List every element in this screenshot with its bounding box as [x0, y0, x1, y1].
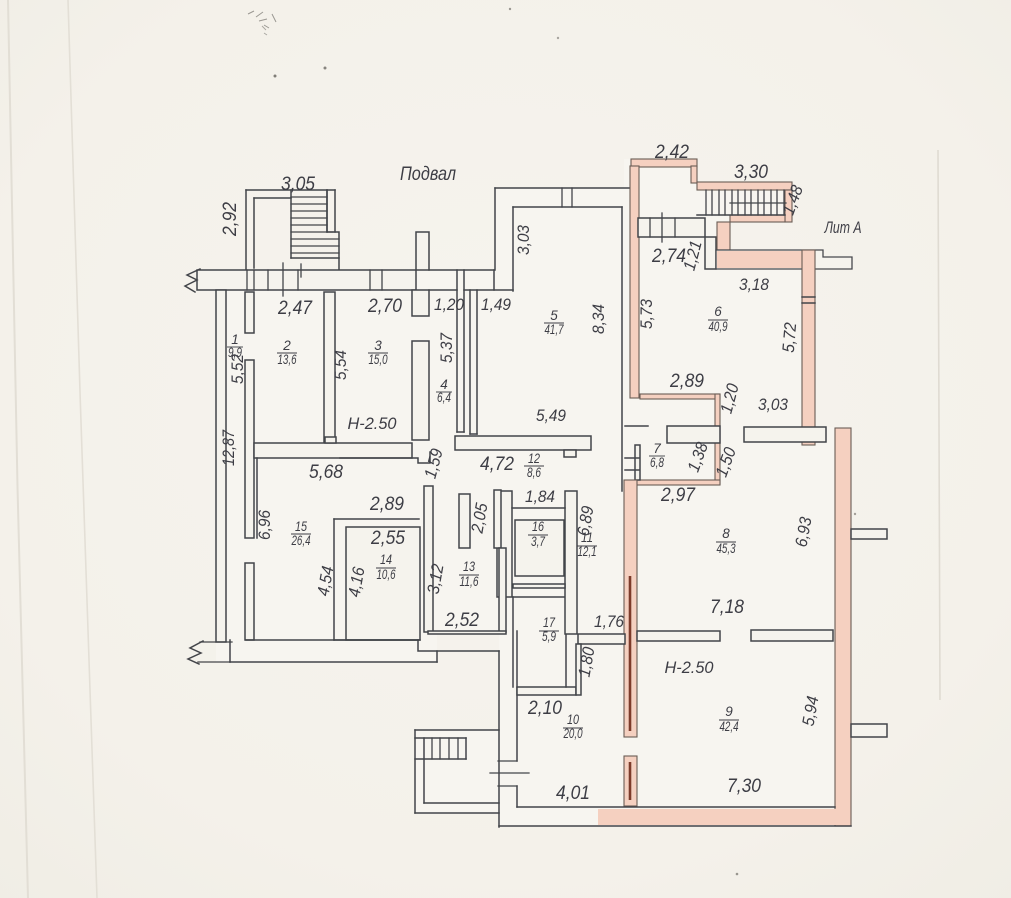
svg-text:13,6: 13,6 [278, 352, 297, 367]
svg-text:5,52: 5,52 [228, 354, 247, 384]
svg-text:5,68: 5,68 [309, 462, 343, 483]
svg-text:2,10: 2,10 [527, 698, 562, 719]
svg-text:40,9: 40,9 [709, 319, 728, 334]
svg-text:2,70: 2,70 [367, 296, 402, 317]
svg-text:3,03: 3,03 [514, 225, 533, 255]
svg-text:20,0: 20,0 [563, 726, 583, 741]
svg-text:6,8: 6,8 [650, 455, 664, 470]
svg-text:10,6: 10,6 [377, 567, 396, 582]
svg-text:12: 12 [528, 451, 540, 466]
svg-text:8,6: 8,6 [527, 465, 541, 480]
svg-text:5: 5 [550, 308, 558, 323]
svg-text:7,30: 7,30 [727, 776, 761, 797]
svg-text:6,4: 6,4 [437, 390, 451, 405]
svg-text:11,6: 11,6 [460, 574, 479, 589]
svg-text:5,49: 5,49 [536, 406, 566, 425]
svg-text:11: 11 [581, 530, 593, 545]
svg-text:7,18: 7,18 [710, 597, 744, 618]
svg-text:8,34: 8,34 [589, 304, 608, 334]
svg-text:41,7: 41,7 [545, 322, 564, 337]
svg-text:2,52: 2,52 [444, 610, 479, 631]
svg-text:3: 3 [374, 338, 382, 353]
svg-text:Подвал: Подвал [400, 164, 456, 185]
svg-text:26,4: 26,4 [291, 533, 311, 548]
svg-text:3,03: 3,03 [758, 395, 788, 414]
svg-text:2,89: 2,89 [369, 494, 404, 515]
svg-text:12,1: 12,1 [578, 544, 597, 559]
svg-text:42,4: 42,4 [720, 719, 739, 734]
svg-text:3,7: 3,7 [531, 534, 545, 549]
svg-text:16: 16 [532, 519, 544, 534]
svg-text:6: 6 [714, 304, 722, 319]
svg-text:1,20: 1,20 [434, 295, 464, 314]
svg-text:2,55: 2,55 [370, 528, 405, 549]
svg-text:4,72: 4,72 [480, 454, 514, 475]
svg-text:1,49: 1,49 [481, 295, 511, 314]
svg-text:2: 2 [282, 338, 291, 353]
svg-text:9: 9 [725, 704, 733, 719]
svg-text:3,30: 3,30 [734, 162, 768, 183]
svg-text:Н-2.50: Н-2.50 [665, 658, 715, 677]
svg-text:15: 15 [295, 519, 307, 534]
svg-text:12,87: 12,87 [219, 430, 238, 466]
svg-text:6,96: 6,96 [255, 510, 274, 540]
svg-text:5,72: 5,72 [779, 321, 801, 353]
svg-text:3,18: 3,18 [739, 275, 769, 294]
svg-text:5,73: 5,73 [637, 299, 656, 329]
svg-text:5,54: 5,54 [331, 350, 350, 380]
svg-text:13: 13 [463, 559, 475, 574]
svg-text:3,05: 3,05 [281, 174, 315, 195]
svg-text:2,42: 2,42 [654, 142, 689, 163]
svg-text:2,92: 2,92 [220, 202, 241, 237]
svg-text:7: 7 [653, 441, 661, 456]
svg-text:5,9: 5,9 [542, 629, 556, 644]
svg-text:Лит А: Лит А [824, 218, 862, 237]
svg-text:45,3: 45,3 [717, 541, 736, 556]
svg-text:4,01: 4,01 [556, 783, 590, 804]
svg-text:1,76: 1,76 [594, 612, 624, 631]
svg-text:2,97: 2,97 [660, 485, 696, 506]
svg-text:8: 8 [722, 526, 730, 541]
svg-text:5,37: 5,37 [437, 333, 456, 363]
svg-text:Н-2.50: Н-2.50 [348, 414, 398, 433]
svg-text:10: 10 [567, 712, 579, 727]
svg-text:2,47: 2,47 [277, 298, 313, 319]
svg-text:15,0: 15,0 [369, 352, 388, 367]
svg-text:2,89: 2,89 [669, 371, 704, 392]
svg-text:1,84: 1,84 [525, 487, 555, 506]
svg-text:17: 17 [543, 615, 555, 630]
svg-text:14: 14 [380, 552, 392, 567]
